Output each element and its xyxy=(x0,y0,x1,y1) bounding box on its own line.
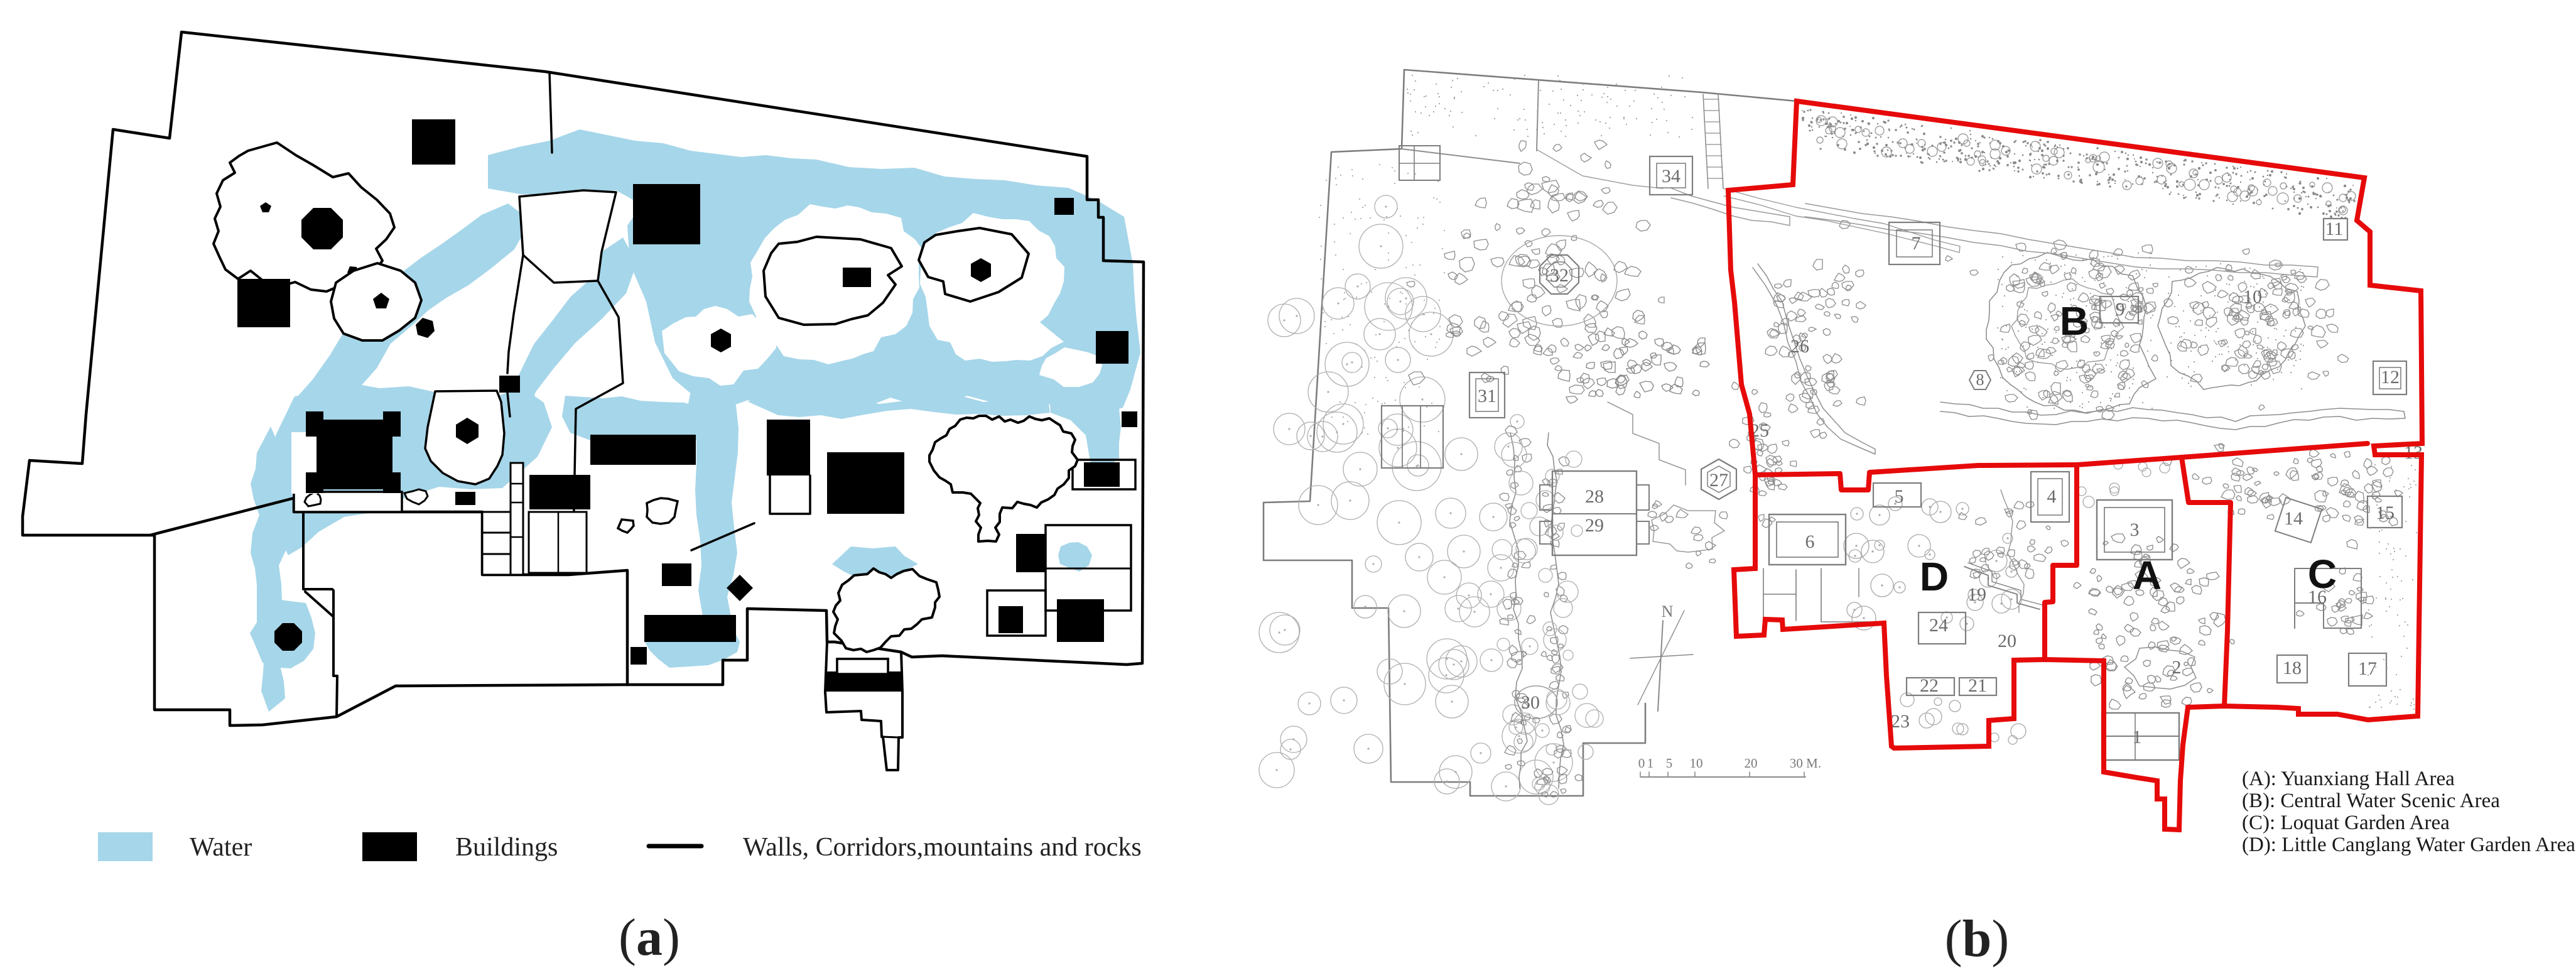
svg-text:Buildings: Buildings xyxy=(455,833,558,862)
svg-text:2: 2 xyxy=(2172,657,2182,678)
svg-text:A: A xyxy=(2133,553,2162,598)
svg-text:29: 29 xyxy=(1585,515,1604,536)
svg-text:6: 6 xyxy=(1805,531,1815,552)
svg-text:3: 3 xyxy=(2130,519,2140,540)
svg-text:1: 1 xyxy=(2133,727,2142,747)
svg-text:24: 24 xyxy=(1929,615,1948,636)
svg-text:7: 7 xyxy=(1912,233,1921,254)
svg-text:31: 31 xyxy=(1478,386,1496,406)
svg-text:C: C xyxy=(2308,551,2337,597)
svg-text:10: 10 xyxy=(2243,286,2262,307)
svg-text:1: 1 xyxy=(1647,756,1654,771)
svg-text:(A): Yuanxiang Hall Area: (A): Yuanxiang Hall Area xyxy=(2242,768,2455,790)
svg-text:15: 15 xyxy=(2376,503,2395,523)
svg-text:27: 27 xyxy=(1709,470,1728,491)
svg-text:B: B xyxy=(2060,298,2089,344)
svg-text:9: 9 xyxy=(2116,299,2125,320)
svg-text:8: 8 xyxy=(1976,371,1984,389)
svg-text:(D): Little Canglang Water Gar: (D): Little Canglang Water Garden Area xyxy=(2242,834,2575,856)
svg-text:20: 20 xyxy=(1745,756,1758,771)
svg-text:26: 26 xyxy=(1790,336,1809,357)
svg-text:(B): Central Water Scenic Area: (B): Central Water Scenic Area xyxy=(2242,790,2500,812)
svg-text:5: 5 xyxy=(1895,486,1904,507)
svg-text:23: 23 xyxy=(1891,711,1910,732)
svg-text:32: 32 xyxy=(1550,265,1569,286)
svg-text:30: 30 xyxy=(1521,692,1540,713)
svg-text:Water: Water xyxy=(190,833,252,862)
svg-text:(b): (b) xyxy=(1945,910,2010,968)
svg-text:(a): (a) xyxy=(619,908,680,967)
svg-text:22: 22 xyxy=(1920,675,1939,696)
svg-text:14: 14 xyxy=(2284,508,2303,529)
svg-text:10: 10 xyxy=(1690,756,1703,771)
svg-text:(C): Loquat Garden Area: (C): Loquat Garden Area xyxy=(2242,812,2450,834)
svg-text:11: 11 xyxy=(2325,219,2344,239)
svg-text:5: 5 xyxy=(1666,756,1673,771)
svg-text:20: 20 xyxy=(1998,631,2016,651)
svg-text:4: 4 xyxy=(2047,486,2057,507)
svg-text:12: 12 xyxy=(2381,367,2400,388)
svg-text:D: D xyxy=(1920,554,1949,599)
svg-text:28: 28 xyxy=(1585,486,1604,507)
svg-text:21: 21 xyxy=(1968,675,1987,696)
svg-text:17: 17 xyxy=(2358,658,2377,679)
svg-text:18: 18 xyxy=(2283,658,2302,678)
svg-text:19: 19 xyxy=(1967,584,1986,605)
svg-text:Walls, Corridors,mountains and: Walls, Corridors,mountains and rocks xyxy=(743,833,1142,862)
svg-text:34: 34 xyxy=(1662,166,1680,187)
svg-text:N: N xyxy=(1662,602,1674,621)
svg-text:30 M.: 30 M. xyxy=(1790,756,1821,771)
svg-text:0: 0 xyxy=(1638,756,1645,771)
